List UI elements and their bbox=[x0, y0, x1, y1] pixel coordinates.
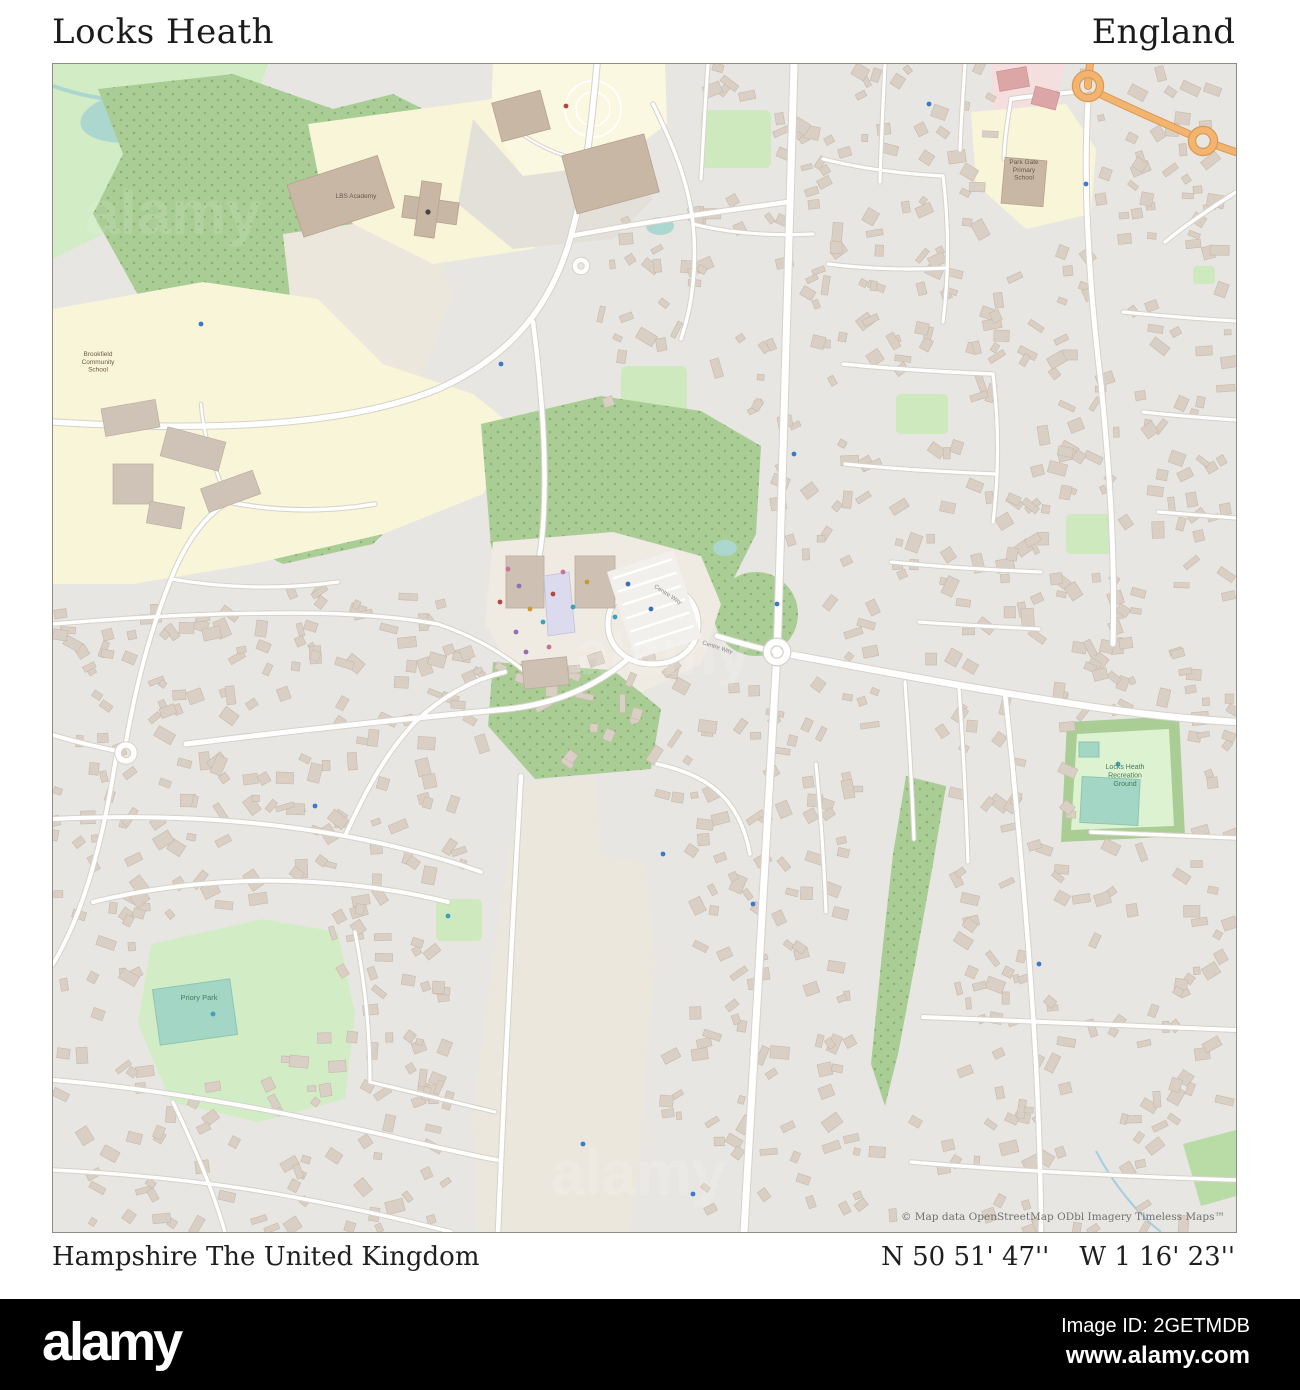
region-title: England bbox=[1092, 12, 1235, 52]
poi-dot bbox=[571, 605, 576, 610]
watermark-text: alamy bbox=[85, 179, 261, 248]
poi-dot bbox=[498, 600, 503, 605]
poi-dot bbox=[199, 322, 204, 327]
longitude: W 1 16' 23'' bbox=[1079, 1242, 1235, 1272]
latitude: N 50 51' 47'' bbox=[881, 1242, 1049, 1272]
poi-dot bbox=[517, 584, 522, 589]
poi-dot bbox=[446, 914, 451, 919]
poi-dot bbox=[564, 104, 569, 109]
poi-dot bbox=[927, 102, 932, 107]
watermark-text: alamy bbox=[550, 1139, 726, 1208]
poi-dot bbox=[541, 620, 546, 625]
poi-dot bbox=[211, 1012, 216, 1017]
poi-dot bbox=[626, 582, 631, 587]
map-canvas: alamyalamyalamy BrookfieldCommunitySchoo… bbox=[52, 63, 1237, 1233]
poi-dot bbox=[751, 902, 756, 907]
page-title: Locks Heath bbox=[52, 12, 274, 52]
poi-dot bbox=[775, 602, 780, 607]
poi-dot bbox=[551, 592, 556, 597]
coordinates: N 50 51' 47''W 1 16' 23'' bbox=[881, 1242, 1235, 1272]
street-map: alamyalamyalamy BrookfieldCommunitySchoo… bbox=[53, 64, 1236, 1232]
map-attribution: © Map data OpenStreetMap ODbl Imagery Ti… bbox=[901, 1211, 1225, 1223]
stock-photo-page: Locks Heath England bbox=[0, 0, 1300, 1390]
poi-dot bbox=[506, 567, 511, 572]
poi-dot bbox=[524, 650, 529, 655]
poi-dot bbox=[528, 607, 533, 612]
map-label: LBS Academy bbox=[336, 193, 378, 200]
poi-dot bbox=[313, 804, 318, 809]
poi-dot bbox=[585, 580, 590, 585]
location-subtitle: Hampshire The United Kingdom bbox=[52, 1242, 480, 1272]
alamy-website: www.alamy.com bbox=[1061, 1342, 1250, 1370]
alamy-footer-bar: alamy Image ID: 2GETMDB www.alamy.com bbox=[0, 1299, 1300, 1390]
poi-dot bbox=[561, 570, 566, 575]
poi-dot bbox=[649, 607, 654, 612]
poi-dot bbox=[661, 852, 666, 857]
poi-dot bbox=[547, 645, 552, 650]
alamy-logo: alamy bbox=[42, 1311, 180, 1373]
poi-dot bbox=[499, 362, 504, 367]
image-id: Image ID: 2GETMDB bbox=[1061, 1315, 1250, 1338]
poi-dot bbox=[792, 452, 797, 457]
poi-dot bbox=[1037, 962, 1042, 967]
poi-dot bbox=[514, 630, 519, 635]
poi-dot bbox=[1084, 182, 1089, 187]
map-label: Priory Park bbox=[180, 993, 217, 1002]
